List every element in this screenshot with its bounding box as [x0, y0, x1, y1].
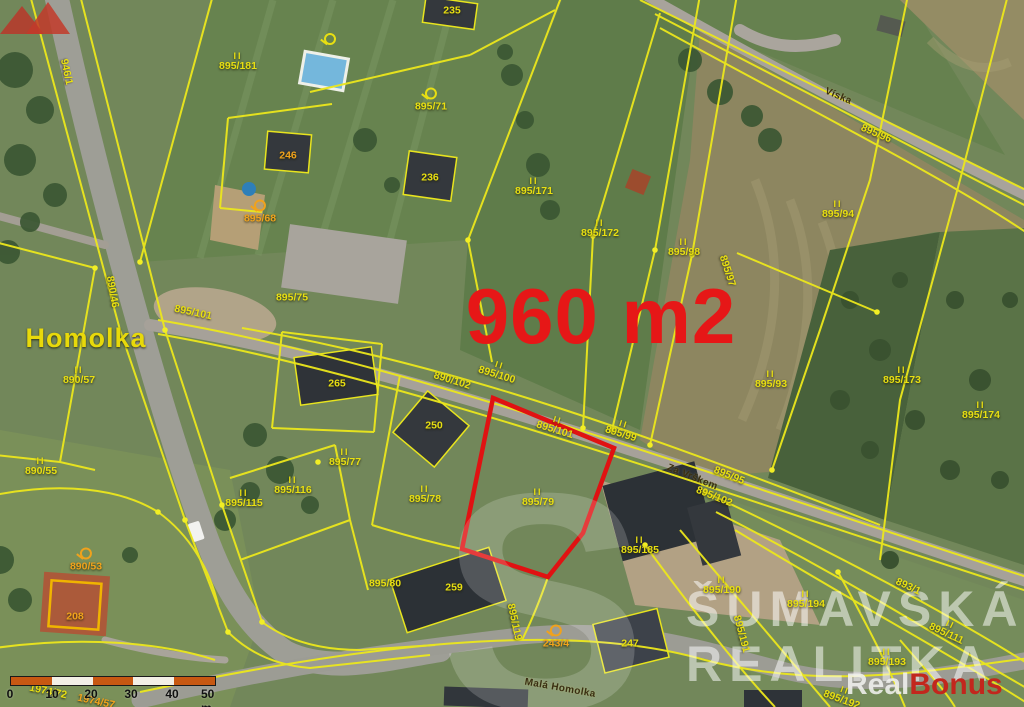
parcel-label: II895/193	[868, 648, 906, 668]
parcel-label: 247	[621, 638, 639, 649]
label-text: 895/173	[883, 375, 921, 386]
label-text: 259	[445, 582, 463, 593]
scale-segment	[52, 677, 93, 685]
parcel-label: 250	[425, 420, 443, 431]
parcel-label: II895/171	[515, 177, 553, 197]
label-text: 893/1	[894, 576, 922, 597]
label-text: 895/94	[822, 209, 854, 220]
parcel-label: 895/191	[731, 614, 751, 654]
parcel-label: 895/68	[244, 199, 276, 224]
label-text: 246	[279, 150, 297, 161]
scale-segment	[11, 677, 52, 685]
label-text: 895/193	[868, 657, 906, 668]
scale-tick: 50 m	[201, 687, 227, 707]
parcel-label: II890/57	[63, 366, 95, 386]
parcel-label: II895/94	[822, 200, 854, 220]
label-text: 895/101	[535, 419, 575, 441]
scale-tick: 30	[124, 687, 137, 701]
scale-bar	[10, 676, 216, 686]
building-flag-icon	[80, 547, 92, 559]
label-text: 895/75	[276, 292, 308, 303]
parcel-label: 895/80	[369, 578, 401, 589]
parcel-label: II895/194	[787, 590, 825, 610]
label-text: 890/53	[70, 561, 102, 572]
parcel-label: II895/101	[535, 411, 577, 441]
parcel-label: II895/99	[604, 416, 641, 445]
label-text: 208	[66, 611, 84, 622]
parcel-label: 946/1	[58, 58, 74, 86]
label-text: 890/57	[63, 375, 95, 386]
building-flag-icon	[324, 33, 336, 45]
label-text: 895/98	[668, 247, 700, 258]
label-text: 895/78	[409, 494, 441, 505]
label-text: 895/172	[581, 228, 619, 239]
map-label-layer: 946/1235II895/181895/71246236895/68II895…	[0, 0, 1024, 707]
parcel-label: II895/115	[225, 489, 262, 509]
label-text: 960 m2	[466, 276, 737, 358]
parcel-label: II895/174	[962, 401, 1000, 421]
parcel-label: II895/190	[703, 576, 741, 596]
parcel-label: 235	[443, 5, 461, 16]
parcel-label: II895/93	[755, 370, 787, 390]
parcel-label: II890/55	[25, 457, 57, 477]
parcel-label: 895/119	[505, 603, 524, 642]
parcel-label: II895/77	[329, 448, 361, 468]
parcel-label: 890/102	[432, 370, 472, 392]
scale-tick: 10	[45, 687, 58, 701]
label-text: 895/96	[859, 123, 893, 146]
label-text: 895/185	[621, 545, 659, 556]
scale-segment	[93, 677, 134, 685]
scale-tick: 40	[165, 687, 178, 701]
parcel-label: II895/192	[822, 680, 865, 707]
parcel-label: 895/96	[859, 123, 893, 146]
label-text: 895/100	[477, 364, 517, 386]
label-text: 247	[621, 638, 639, 649]
building-flag-icon	[254, 199, 266, 211]
scale-segment	[133, 677, 174, 685]
scale-tick: 20	[84, 687, 97, 701]
parcel-label: II895/181	[219, 52, 257, 72]
label-text: 265	[328, 378, 346, 389]
building-flag-icon	[550, 624, 562, 636]
parcel-label: 890/46	[104, 275, 120, 309]
parcel-label: 246	[279, 150, 297, 161]
scale-tick: 0	[7, 687, 14, 701]
parcel-label: 208	[66, 611, 84, 622]
parcel-label: 895/101	[173, 304, 212, 323]
street-label: Malá Homolka	[524, 678, 597, 701]
label-text: 895/116	[274, 485, 311, 496]
label-text: 895/119	[505, 603, 524, 642]
label-text: 895/80	[369, 578, 401, 589]
label-text: Víska	[823, 87, 853, 108]
scale-bar-ticks: 01020304050 m	[0, 687, 240, 701]
parcel-label: 895/71	[415, 87, 447, 112]
label-text: 890/55	[25, 466, 57, 477]
area-size-label: 960 m2	[466, 276, 737, 358]
parcel-label: II895/78	[409, 485, 441, 505]
label-text: 895/181	[219, 61, 257, 72]
label-text: Homolka	[25, 324, 146, 352]
parcel-label: II895/116	[274, 476, 311, 496]
label-text: 895/191	[731, 614, 751, 654]
label-text: 250	[425, 420, 443, 431]
label-text: 236	[421, 172, 439, 183]
label-text: 895/194	[787, 599, 825, 610]
label-text: 890/102	[432, 370, 472, 392]
parcel-label: 243/4	[543, 624, 569, 649]
label-text: 895/79	[522, 497, 554, 508]
label-text: 895/101	[173, 304, 212, 323]
label-text: 895/174	[962, 410, 1000, 421]
parcel-label: II895/172	[581, 219, 619, 239]
label-text: 895/93	[755, 379, 787, 390]
parcel-label: 890/53	[70, 547, 102, 572]
parcel-label: II895/98	[668, 238, 700, 258]
parcel-label: II895/79	[522, 488, 554, 508]
parcel-label: II895/100	[477, 356, 519, 386]
parcel-label: II895/185	[621, 536, 659, 556]
parcel-label: 265	[328, 378, 346, 389]
parcel-label: 895/75	[276, 292, 308, 303]
label-text: 895/77	[329, 457, 361, 468]
place-label: Homolka	[25, 324, 146, 352]
label-text: 890/46	[104, 275, 120, 309]
scale-segment	[174, 677, 215, 685]
label-text: 895/171	[515, 186, 553, 197]
street-label: Víska	[823, 87, 853, 108]
parcel-label: II895/111	[927, 613, 969, 647]
parcel-label	[324, 33, 336, 47]
building-flag-icon	[425, 87, 437, 99]
label-text: 895/99	[604, 424, 638, 444]
label-text: 895/71	[415, 101, 447, 112]
label-text: 243/4	[543, 638, 569, 649]
parcel-label: 259	[445, 582, 463, 593]
parcel-label: 893/1	[894, 576, 922, 597]
label-text: 235	[443, 5, 461, 16]
label-text: 895/190	[703, 585, 741, 596]
parcel-label: 236	[421, 172, 439, 183]
cadastral-map: S ŠUMAVSKÁ REALITKA RealBonus 946/1235II…	[0, 0, 1024, 707]
parcel-label: II895/173	[883, 366, 921, 386]
label-text: 946/1	[58, 58, 74, 86]
label-text: Malá Homolka	[524, 678, 597, 701]
label-text: 895/68	[244, 213, 276, 224]
label-text: 895/115	[225, 498, 262, 509]
